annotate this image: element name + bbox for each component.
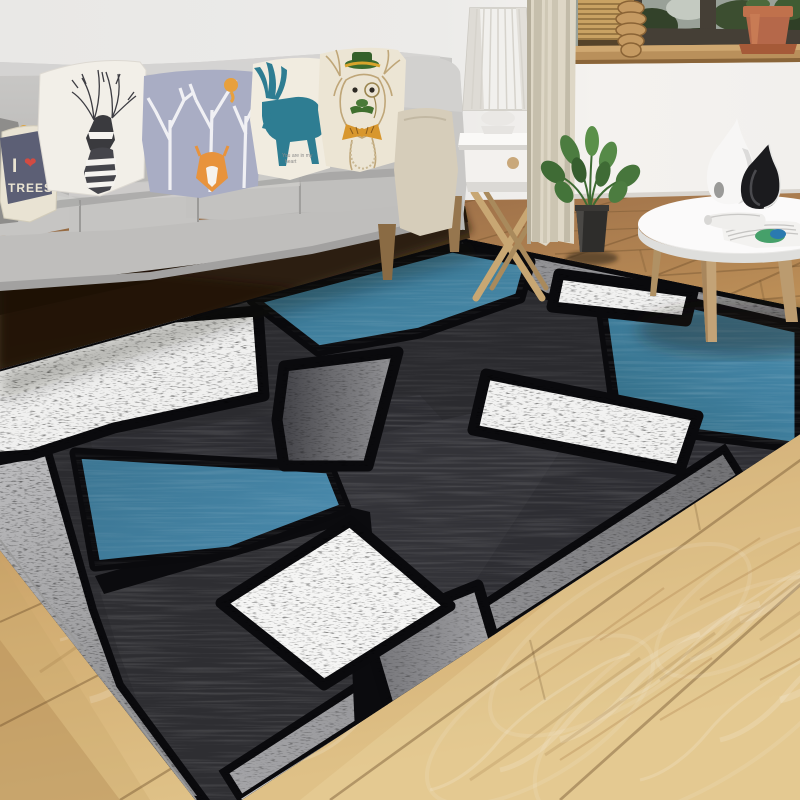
svg-text:❤: ❤ xyxy=(24,155,37,172)
svg-text:heart: heart xyxy=(285,159,297,165)
svg-text:I: I xyxy=(12,156,17,177)
svg-text:TREES: TREES xyxy=(8,181,53,195)
